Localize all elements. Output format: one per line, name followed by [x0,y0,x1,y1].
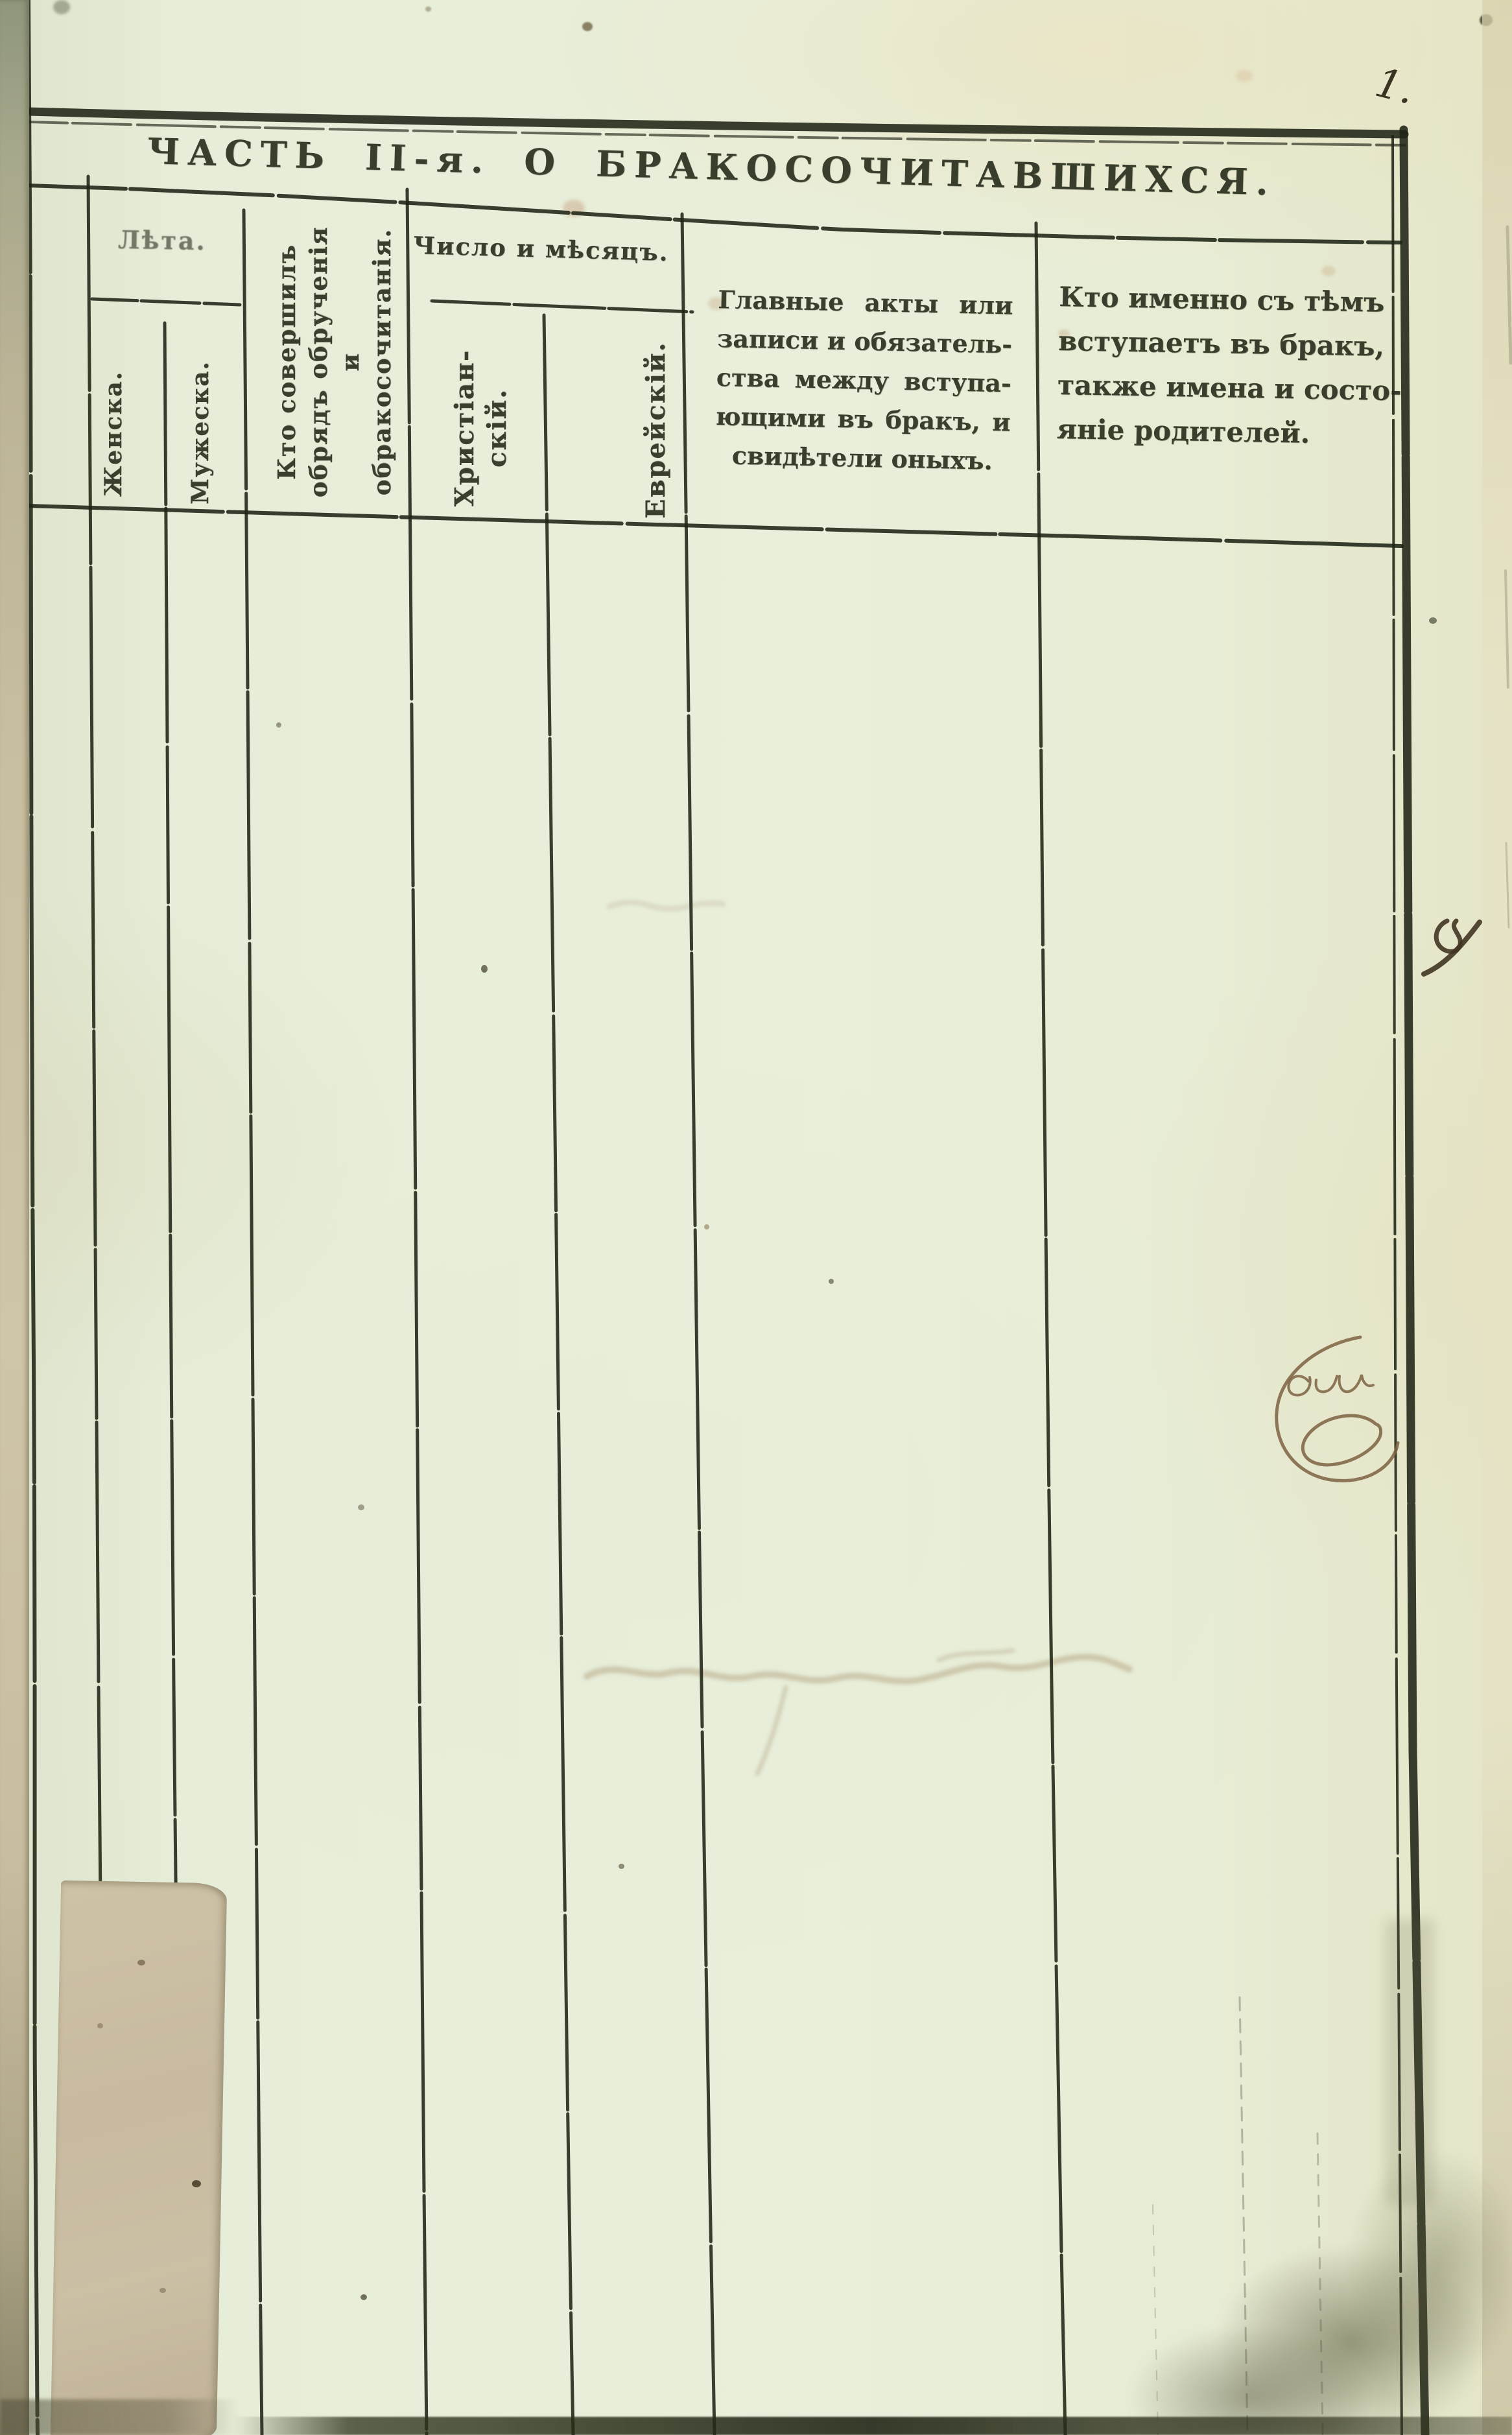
date-group-underline [432,301,692,312]
col-line-acts-spouses [1036,223,1065,2435]
handwritten-oval-flourish [1277,1337,1398,1480]
age-female-header: Женска. [99,365,130,503]
age-group-header: Лѣта. [118,225,207,255]
spouses-header: Кто именно съ тѣмъ вступаетъ въ бракъ, т… [1056,275,1381,457]
bottom-right-stain [1089,2127,1512,2435]
header-body-divider [29,506,1402,546]
scanned-registry-page: ЧАСТЬ II-я. О БРАКОСОЧИТАВШИХСЯ. Лѣта. Ж… [0,0,1512,2435]
col-line-officiant-date [407,189,427,2435]
table-left-border [29,0,38,2435]
page-right-edge [1482,0,1512,2435]
col-line-christian-jewish [544,315,573,2435]
stain-spot [97,2023,103,2028]
stain-spot [192,2180,201,2187]
jewish-date-header: Еврейскій. [639,346,673,519]
col-line-male-officiant [244,210,262,2435]
page-left-edge [0,0,29,2435]
stain-spot [137,1960,145,1966]
age-group-underline [92,299,240,305]
age-male-header: Мужеска. [185,363,217,505]
table-top-border [29,112,1404,134]
bottom-left-shadow [0,2399,240,2435]
officiant-header: Кто совершилъ обрядъ обрученія и обракос… [271,220,368,504]
handwritten-x-mark [1424,921,1480,974]
acts-header: Главные акты или записи и обязатель- ств… [715,280,1013,481]
col-line-jewish-acts [682,214,715,2435]
stain-spot [159,2288,166,2293]
christian-date-header: Христіан- скій. [449,333,516,523]
bottom-scan-edge [233,2417,1512,2435]
